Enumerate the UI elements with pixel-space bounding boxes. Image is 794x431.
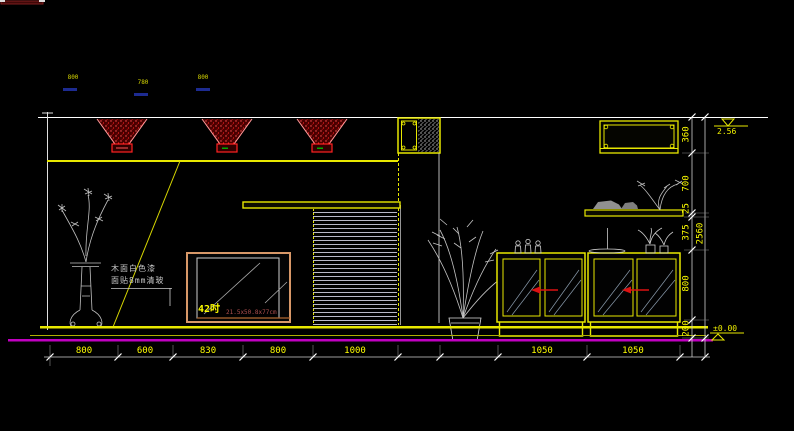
column-edge-line [399, 153, 440, 325]
material-note-line2: 面贴8mm清玻 [111, 276, 164, 286]
leader-line [111, 161, 180, 327]
left-wall-line [42, 112, 53, 330]
dimension-label: 1050 [522, 346, 562, 356]
dimension-label: 830 [188, 346, 228, 356]
stray-mark [134, 93, 148, 96]
cabinet-unit [588, 253, 680, 337]
dish-decor [589, 228, 625, 253]
floor-lines [8, 326, 713, 342]
stray-label: 800 [192, 75, 214, 81]
overall-dimension-label: 2560 [696, 214, 707, 254]
tv-spec-label: 21.5x50.8x77cm [226, 309, 277, 316]
dimension-label: 360 [682, 115, 693, 155]
display-shelf [585, 210, 683, 216]
stray-mark [63, 88, 77, 91]
level-value-bottom: ±0.00 [713, 324, 737, 333]
stray-label: 800 [62, 75, 84, 81]
level-marker-icon [710, 333, 744, 340]
dimension-label: 200 [682, 309, 693, 349]
dimension-label: 800 [682, 264, 693, 304]
tv-size-label: 42吋 [198, 304, 220, 315]
dimension-label: 1050 [613, 346, 653, 356]
level-value-top: 2.56 [717, 127, 736, 136]
louver-panel [313, 209, 397, 325]
dimension-label: 1000 [335, 346, 375, 356]
shelf-plant [637, 180, 683, 210]
dimension-label: 375 [682, 213, 693, 253]
stray-mark [196, 88, 210, 91]
dimension-label: 800 [64, 346, 104, 356]
dimension-label: 800 [258, 346, 298, 356]
elevation-linework [0, 0, 794, 431]
beam-section [398, 118, 440, 153]
stray-label: 780 [132, 80, 154, 86]
level-marker-icon [714, 119, 748, 126]
pedestal-plant [58, 188, 112, 328]
downlight-icon [202, 119, 252, 152]
model-car-decor [593, 201, 638, 210]
potted-plant-small [638, 228, 673, 253]
vase-decor [515, 239, 541, 253]
screen-artifact [0, 0, 45, 4]
floating-shelf [243, 202, 400, 208]
cabinet-unit [497, 253, 585, 337]
dimension-label: 600 [125, 346, 165, 356]
material-note-line1: 木面白色漆 [111, 264, 156, 274]
wall-cabinet [600, 121, 678, 153]
downlight-icon [97, 119, 147, 152]
downlight-icon [297, 119, 347, 152]
cad-elevation-canvas[interactable]: 800 780 800 木面白色漆 面贴8mm清玻 42吋 21.5x50.8x… [0, 0, 794, 431]
